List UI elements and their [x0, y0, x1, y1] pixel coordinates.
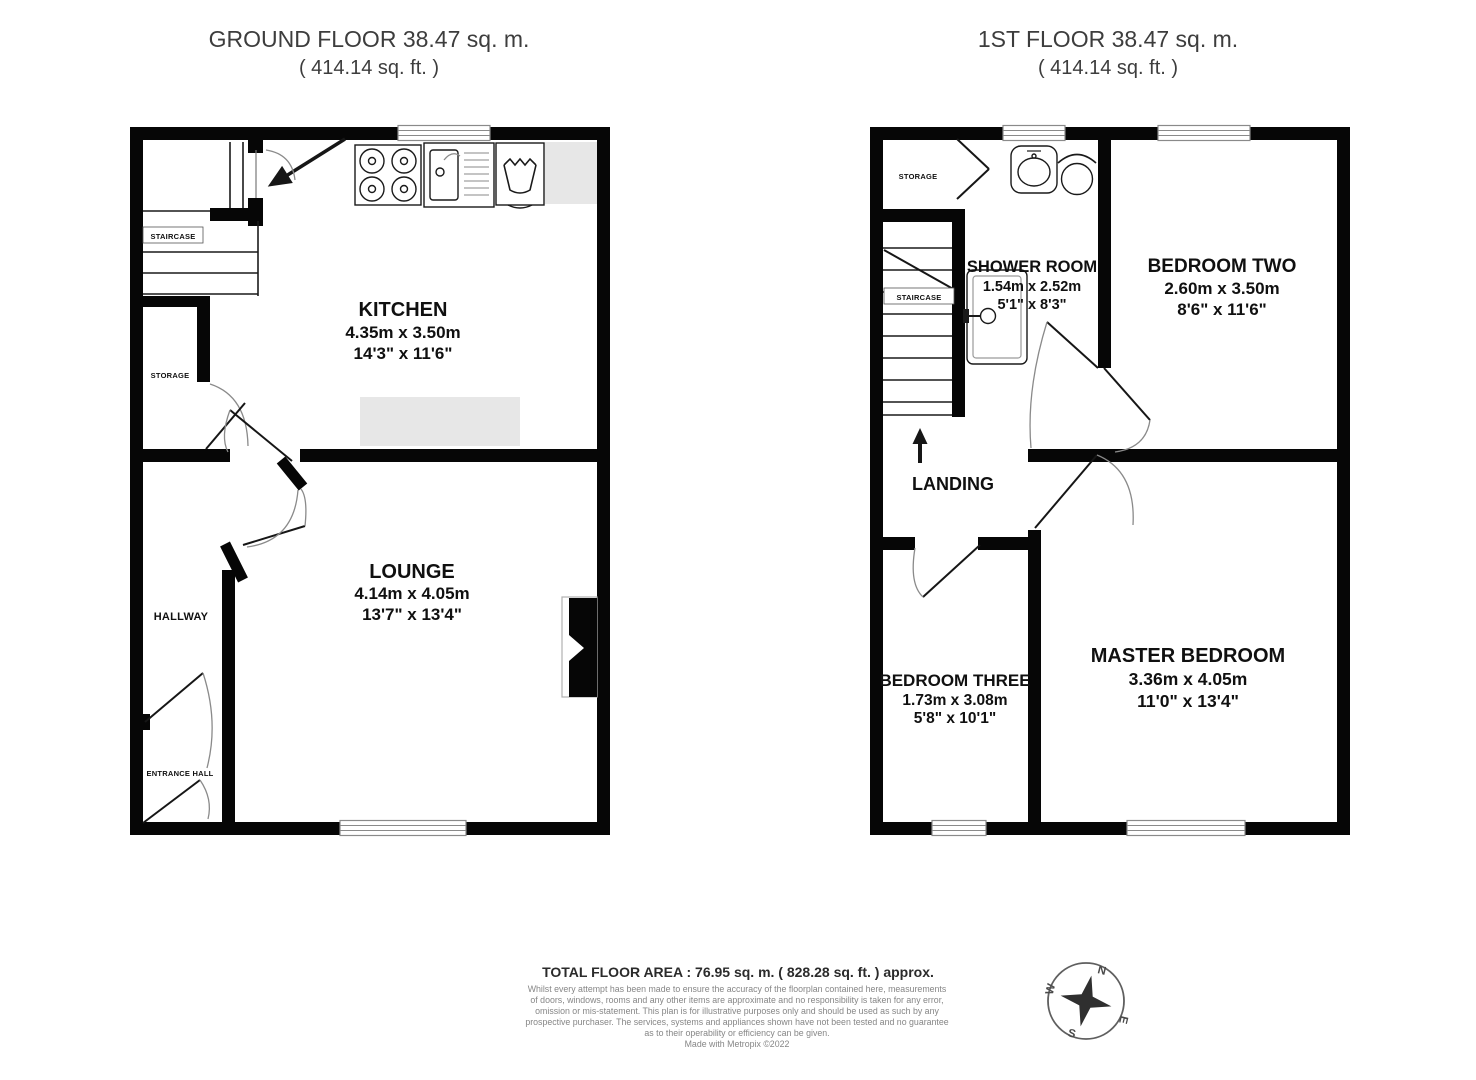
bedroom-three-label: BEDROOM THREE 1.73m x 3.08m 5'8" x 10'1": [879, 671, 1030, 727]
credit-line: Made with Metropix ©2022: [685, 1039, 790, 1049]
first-floor-plan: STAIRCASE: [870, 126, 1350, 836]
kitchen-island: [360, 397, 520, 446]
floor-titles: GROUND FLOOR 38.47 sq. m. ( 414.14 sq. f…: [209, 26, 1239, 79]
lounge-label: LOUNGE 4.14m x 4.05m 13'7" x 13'4": [354, 561, 469, 624]
first-storage-door: [957, 139, 989, 199]
door-leaf: [957, 169, 989, 199]
wall-segment: [210, 208, 263, 221]
door-leaf: [1035, 455, 1097, 528]
first-storage-label: STORAGE: [899, 172, 938, 181]
stove-icon: [355, 145, 421, 205]
disclaimer-line: omission or mis-statement. This plan is …: [535, 1006, 939, 1016]
basin-icon: [1011, 146, 1057, 193]
compass-rose-icon: N E S W: [1044, 963, 1130, 1041]
compass-west: W: [1044, 982, 1058, 996]
first-floor-title: 1ST FLOOR 38.47 sq. m.: [978, 26, 1238, 52]
wall-segment: [248, 127, 263, 153]
master-bedroom-imperial: 11'0" x 13'4": [1137, 691, 1239, 711]
door-arc: [203, 673, 212, 768]
window: [1127, 821, 1245, 836]
kitchen-fixtures: [355, 142, 597, 446]
kitchen-counter: [545, 142, 597, 204]
kitchen-name: KITCHEN: [359, 299, 448, 321]
door-leaf: [923, 545, 980, 597]
ground-storage-label: STORAGE: [151, 371, 190, 380]
ground-windows: [340, 126, 490, 836]
hallway-label: HALLWAY: [154, 611, 209, 623]
wall-segment: [978, 537, 1041, 550]
wall-segment: [197, 296, 210, 382]
door-leaf: [230, 410, 292, 461]
master-bedroom-metric: 3.36m x 4.05m: [1129, 669, 1248, 689]
wall-segment: [222, 570, 235, 822]
footer: TOTAL FLOOR AREA : 76.95 sq. m. ( 828.28…: [525, 964, 948, 1049]
bedroom-three-metric: 1.73m x 3.08m: [902, 692, 1007, 709]
window: [1003, 126, 1065, 141]
landing-label: LANDING: [912, 474, 994, 494]
bedroom-three-imperial: 5'8" x 10'1": [914, 710, 996, 727]
compass-star: [1061, 976, 1112, 1027]
wall-segment: [130, 296, 208, 307]
door-leaf: [145, 673, 203, 722]
lounge-name: LOUNGE: [369, 561, 455, 583]
wall-segment: [1028, 449, 1350, 462]
bedroom-two-label: BEDROOM TWO 2.60m x 3.50m 8'6" x 11'6": [1148, 256, 1297, 319]
kitchen-metric: 4.35m x 3.50m: [345, 323, 460, 342]
total-floor-area: TOTAL FLOOR AREA : 76.95 sq. m. ( 828.28…: [542, 964, 934, 980]
wall-segment: [130, 449, 230, 462]
master-bedroom-label: MASTER BEDROOM 3.36m x 4.05m 11'0" x 13'…: [1091, 645, 1285, 711]
shower-room-fixtures: [963, 146, 1096, 364]
wall-segment: [597, 127, 610, 835]
disclaimer-line: as to their operability or efficiency ca…: [644, 1028, 829, 1038]
disclaimer-line: of doors, windows, rooms and any other i…: [530, 995, 943, 1005]
shower-room-imperial: 5'1" x 8'3": [997, 297, 1066, 313]
door-arc: [247, 490, 298, 547]
bedroom-three-name: BEDROOM THREE: [879, 671, 1030, 690]
ground-floor-plan: STAIRCASE: [130, 126, 610, 836]
shower-room-metric: 1.54m x 2.52m: [983, 279, 1081, 295]
wall-segment: [1098, 127, 1111, 368]
door-arc: [224, 410, 230, 452]
bedroom-two-metric: 2.60m x 3.50m: [1164, 279, 1279, 298]
shower-room-name: SHOWER ROOM: [967, 258, 1097, 276]
compass-east: E: [1116, 1015, 1130, 1026]
compass-north: N: [1096, 964, 1107, 978]
window: [1158, 126, 1250, 141]
door-leaf: [243, 526, 305, 545]
first-staircase: STAIRCASE: [883, 248, 955, 463]
floorplan-canvas: GROUND FLOOR 38.47 sq. m. ( 414.14 sq. f…: [0, 0, 1476, 1080]
master-bedroom-name: MASTER BEDROOM: [1091, 645, 1285, 667]
wall-segment: [130, 127, 610, 140]
toilet-icon: [1058, 155, 1096, 195]
disclaimer-line: prospective purchaser. The services, sys…: [525, 1017, 948, 1027]
chimney-breast: [562, 597, 597, 697]
first-floor-subtitle: ( 414.14 sq. ft. ): [1038, 57, 1178, 79]
door-leaf: [1047, 322, 1098, 368]
wall-segment: [300, 449, 597, 462]
stairs-direction-arrow-icon: [272, 139, 345, 184]
ground-staircase-label: STAIRCASE: [150, 232, 195, 241]
sink-icon: [424, 143, 494, 207]
door-leaf: [1104, 368, 1150, 420]
entrance-hall-label: ENTRANCE HALL: [147, 769, 214, 778]
stairs-up-arrow-icon: [913, 428, 928, 463]
door-arc: [1097, 455, 1133, 525]
wall-segment: [870, 127, 883, 835]
disclaimer-line: Whilst every attempt has been made to en…: [528, 984, 947, 994]
door-leaf: [957, 139, 989, 169]
window: [932, 821, 986, 836]
window: [340, 821, 466, 836]
wall-segment: [870, 537, 915, 550]
bedroom-two-name: BEDROOM TWO: [1148, 256, 1297, 277]
door-arc: [301, 489, 306, 526]
wall-segment: [1337, 127, 1350, 835]
ground-floor-subtitle: ( 414.14 sq. ft. ): [299, 57, 439, 79]
bedroom-two-imperial: 8'6" x 11'6": [1177, 300, 1266, 319]
door-arc: [913, 548, 923, 597]
door-arc: [1030, 322, 1047, 448]
door-leaf: [143, 780, 200, 823]
door-arc: [200, 780, 209, 819]
compass-south: S: [1067, 1027, 1078, 1041]
first-staircase-label: STAIRCASE: [896, 293, 941, 302]
lounge-metric: 4.14m x 4.05m: [354, 584, 469, 603]
washing-machine-icon: [496, 143, 544, 208]
ground-floor-title: GROUND FLOOR 38.47 sq. m.: [209, 26, 530, 52]
kitchen-label: KITCHEN 4.35m x 3.50m 14'3" x 11'6": [345, 299, 460, 363]
window: [398, 126, 490, 141]
angled-wall-stub: [281, 460, 303, 487]
wall-segment: [883, 209, 965, 222]
lounge-imperial: 13'7" x 13'4": [362, 605, 462, 624]
door-arc: [1115, 420, 1150, 452]
kitchen-imperial: 14'3" x 11'6": [354, 344, 453, 363]
